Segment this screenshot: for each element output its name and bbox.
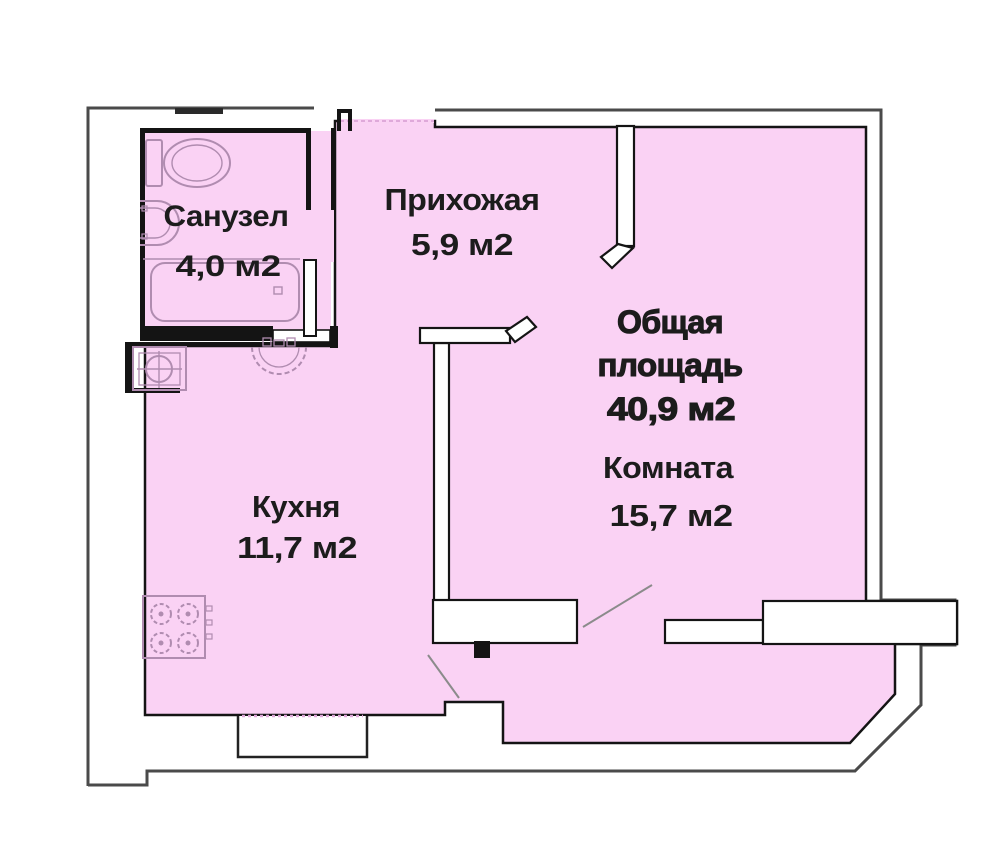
bathroom-label: Санузел: [164, 200, 289, 233]
hallway-label: Прихожая: [385, 182, 540, 217]
kitchen-label: Кухня: [252, 489, 340, 524]
kitchen-area: 11,7 м2: [237, 530, 357, 565]
wall-band-room-left: [665, 620, 763, 643]
wall-band-room-right: [763, 601, 957, 644]
wall-band-notch: [474, 641, 490, 658]
total-area-label-line2: площадь: [598, 347, 743, 383]
floor-plan: Санузел 4,0 м2 Прихожая 5,9 м2 Общая пло…: [0, 0, 1000, 841]
wall-hallway-room: [617, 126, 634, 246]
bathroom-door-leaf: [304, 260, 316, 336]
total-area-value: 40,9 м2: [607, 391, 735, 427]
bathroom-area: 4,0 м2: [176, 250, 281, 283]
outer-wall-step: [175, 108, 223, 114]
wall-kitchen-door-band: [420, 328, 510, 343]
bathroom-doorway: [306, 210, 334, 262]
total-area-label-line1: Общая: [617, 304, 723, 340]
wall-kitchen-room: [434, 343, 449, 604]
living-room-label: Комната: [603, 450, 734, 485]
wall-band-center: [433, 600, 577, 643]
hallway-area: 5,9 м2: [411, 227, 513, 262]
kitchen-window-bay: [238, 716, 367, 757]
floor-plan-canvas: Санузел 4,0 м2 Прихожая 5,9 м2 Общая пло…: [0, 0, 1000, 841]
living-room-area: 15,7 м2: [610, 498, 733, 533]
